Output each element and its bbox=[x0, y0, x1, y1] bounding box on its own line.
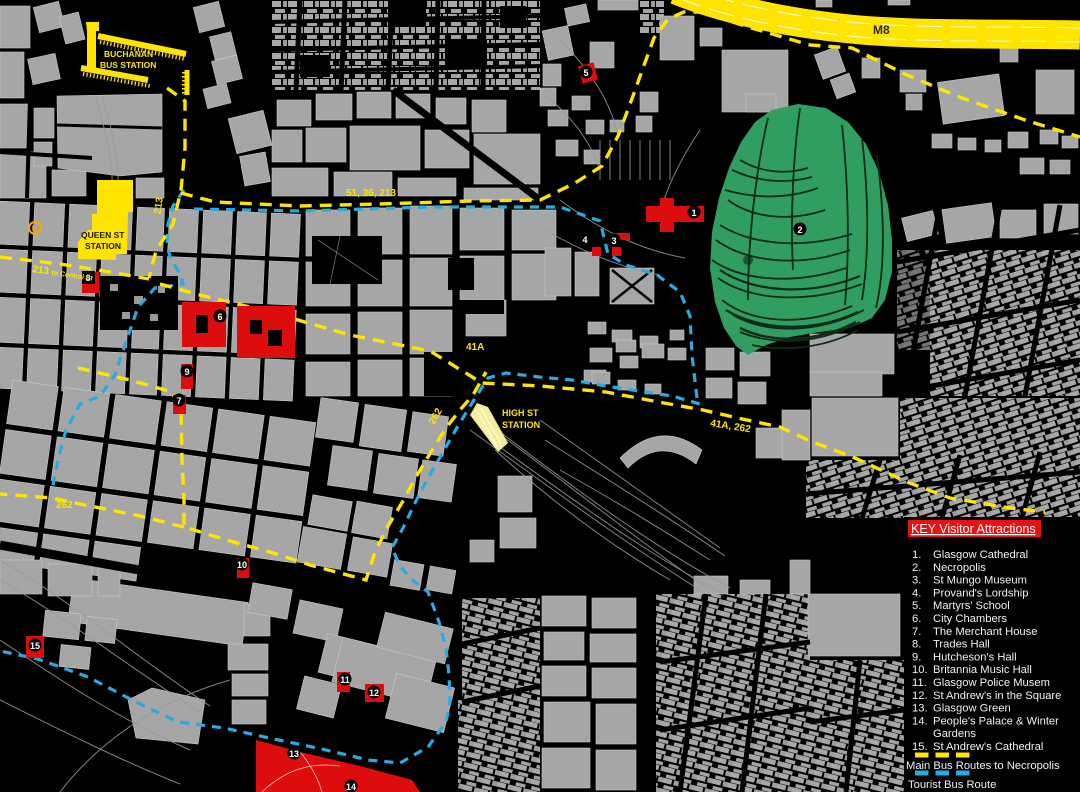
svg-text:Britannia Music Hall: Britannia Music Hall bbox=[933, 664, 1032, 676]
svg-text:4.: 4. bbox=[912, 587, 921, 599]
svg-text:10.: 10. bbox=[912, 664, 928, 676]
svg-text:St Mungo Museum: St Mungo Museum bbox=[933, 575, 1027, 587]
svg-text:Necropolis: Necropolis bbox=[933, 562, 986, 574]
svg-text:9: 9 bbox=[184, 367, 189, 377]
svg-text:14.: 14. bbox=[912, 715, 928, 727]
svg-text:The Merchant House: The Merchant House bbox=[933, 626, 1037, 638]
svg-text:Hutcheson's Hall: Hutcheson's Hall bbox=[933, 651, 1017, 663]
svg-text:7: 7 bbox=[176, 396, 181, 406]
svg-text:8.: 8. bbox=[912, 639, 921, 651]
svg-text:12.: 12. bbox=[912, 690, 928, 702]
svg-text:15.: 15. bbox=[912, 741, 928, 753]
svg-text:Glasgow Green: Glasgow Green bbox=[933, 703, 1011, 715]
svg-text:5: 5 bbox=[583, 68, 588, 78]
svg-text:11: 11 bbox=[340, 675, 350, 685]
svg-text:2: 2 bbox=[797, 225, 802, 235]
svg-text:9.: 9. bbox=[912, 651, 921, 663]
svg-text:6: 6 bbox=[217, 312, 222, 322]
svg-text:People's Palace & Winter: People's Palace & Winter bbox=[933, 715, 1059, 727]
svg-text:St Andrew's in the Square: St Andrew's in the Square bbox=[933, 690, 1061, 702]
svg-text:1: 1 bbox=[691, 208, 696, 218]
svg-text:QUEEN ST: QUEEN ST bbox=[81, 230, 125, 240]
svg-text:Glasgow Police Musem: Glasgow Police Musem bbox=[933, 677, 1050, 689]
svg-text:5.: 5. bbox=[912, 600, 921, 612]
svg-text:7.: 7. bbox=[912, 626, 921, 638]
svg-text:City Chambers: City Chambers bbox=[933, 613, 1007, 625]
svg-text:14: 14 bbox=[346, 782, 356, 792]
svg-text:10: 10 bbox=[237, 560, 247, 570]
svg-text:3: 3 bbox=[611, 236, 616, 246]
svg-text:2.: 2. bbox=[912, 562, 921, 574]
svg-text:Gardens: Gardens bbox=[933, 728, 976, 740]
svg-text:Tourist Bus Route: Tourist Bus Route bbox=[908, 779, 996, 791]
svg-text:St Andrew's Cathedral: St Andrew's Cathedral bbox=[933, 741, 1043, 753]
svg-text:3.: 3. bbox=[912, 575, 921, 587]
svg-text:6.: 6. bbox=[912, 613, 921, 625]
svg-text:Trades Hall: Trades Hall bbox=[933, 639, 990, 651]
svg-text:BUS STATION: BUS STATION bbox=[100, 60, 156, 70]
svg-text:Martyrs' School: Martyrs' School bbox=[933, 600, 1010, 612]
svg-text:STATION: STATION bbox=[85, 241, 121, 251]
svg-text:4: 4 bbox=[582, 235, 587, 245]
svg-text:1.: 1. bbox=[912, 549, 921, 561]
svg-text:41A: 41A bbox=[466, 342, 484, 353]
svg-text:BUCHANAN: BUCHANAN bbox=[104, 49, 153, 59]
svg-text:KEY Visitor Attractions: KEY Visitor Attractions bbox=[911, 522, 1036, 536]
svg-text:262: 262 bbox=[56, 500, 73, 511]
svg-text:11.: 11. bbox=[912, 677, 927, 689]
svg-text:M8: M8 bbox=[873, 23, 890, 37]
svg-text:13: 13 bbox=[289, 749, 299, 759]
svg-text:12: 12 bbox=[369, 688, 379, 698]
svg-text:Main Bus Routes to Necropolis: Main Bus Routes to Necropolis bbox=[906, 760, 1060, 772]
svg-text:15: 15 bbox=[30, 641, 40, 651]
svg-text:13.: 13. bbox=[912, 703, 928, 715]
svg-text:U: U bbox=[32, 224, 39, 234]
svg-text:STATION: STATION bbox=[502, 420, 540, 430]
svg-text:Provand's Lordship: Provand's Lordship bbox=[933, 587, 1028, 599]
svg-text:51, 36, 213: 51, 36, 213 bbox=[346, 188, 396, 199]
svg-text:Glasgow Cathedral: Glasgow Cathedral bbox=[933, 549, 1028, 561]
svg-text:HIGH ST: HIGH ST bbox=[502, 408, 539, 418]
